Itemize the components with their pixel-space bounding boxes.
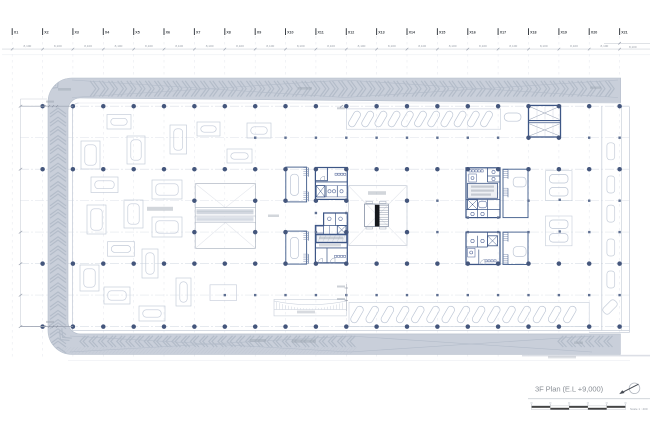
svg-text:X18: X18 xyxy=(530,31,536,35)
svg-text:8,100: 8,100 xyxy=(418,44,426,48)
svg-text:X14: X14 xyxy=(409,31,415,35)
svg-text:8,100: 8,100 xyxy=(509,44,517,48)
svg-text:X17: X17 xyxy=(500,31,506,35)
svg-text:X6: X6 xyxy=(166,31,170,35)
svg-text:8,100: 8,100 xyxy=(297,44,305,48)
svg-text:X8: X8 xyxy=(226,31,230,35)
svg-text:X7: X7 xyxy=(196,31,200,35)
svg-text:8,100: 8,100 xyxy=(266,44,274,48)
svg-text:8,100: 8,100 xyxy=(540,44,548,48)
svg-text:8,100: 8,100 xyxy=(479,44,487,48)
svg-text:X4: X4 xyxy=(105,31,109,35)
svg-text:8,100: 8,100 xyxy=(236,44,244,48)
svg-text:8,100: 8,100 xyxy=(327,44,335,48)
svg-text:8,100: 8,100 xyxy=(115,44,123,48)
svg-text:X9: X9 xyxy=(257,31,261,35)
svg-text:X2: X2 xyxy=(44,31,48,35)
svg-text:X13: X13 xyxy=(378,31,384,35)
svg-text:8,100: 8,100 xyxy=(145,44,153,48)
svg-text:X21: X21 xyxy=(621,31,627,35)
svg-text:X20: X20 xyxy=(591,31,597,35)
svg-text:8,100: 8,100 xyxy=(54,44,62,48)
svg-text:X10: X10 xyxy=(287,31,293,35)
svg-text:8,100: 8,100 xyxy=(601,44,609,48)
svg-text:8,100: 8,100 xyxy=(629,45,637,49)
svg-text:X12: X12 xyxy=(348,31,354,35)
svg-text:8,100: 8,100 xyxy=(175,44,183,48)
svg-text:X5: X5 xyxy=(135,31,139,35)
svg-text:X1: X1 xyxy=(14,31,18,35)
svg-text:8,100: 8,100 xyxy=(388,44,396,48)
svg-text:X3: X3 xyxy=(75,31,79,35)
svg-text:X15: X15 xyxy=(439,31,445,35)
svg-text:8,100: 8,100 xyxy=(24,44,32,48)
svg-text:X11: X11 xyxy=(318,31,324,35)
svg-text:8,100: 8,100 xyxy=(449,44,457,48)
svg-text:8,100: 8,100 xyxy=(358,44,366,48)
svg-text:3F Plan (E.L +9,000): 3F Plan (E.L +9,000) xyxy=(535,385,604,394)
svg-text:8,100: 8,100 xyxy=(84,44,92,48)
svg-text:X16: X16 xyxy=(469,31,475,35)
svg-text:8,100: 8,100 xyxy=(206,44,214,48)
svg-text:8,100: 8,100 xyxy=(570,44,578,48)
svg-text:X19: X19 xyxy=(561,31,567,35)
svg-text:Scale 1 : 400: Scale 1 : 400 xyxy=(630,407,648,411)
